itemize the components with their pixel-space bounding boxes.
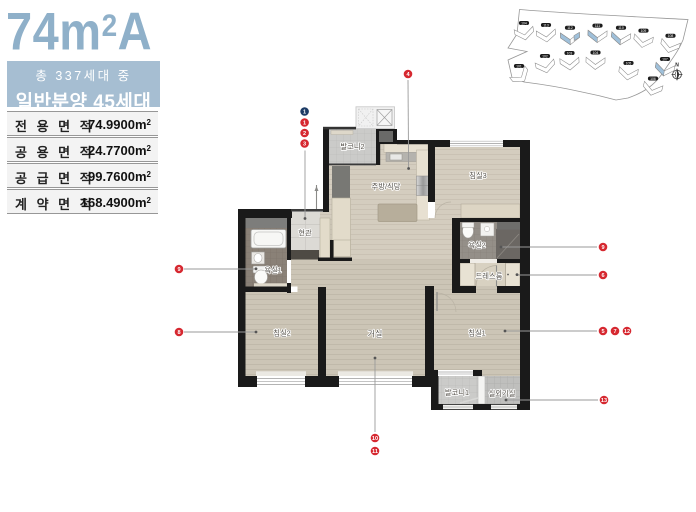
svg-text:10: 10: [372, 436, 378, 442]
svg-text:거실: 거실: [368, 329, 383, 339]
svg-text:5: 5: [601, 329, 604, 335]
svg-text:침실2: 침실2: [273, 329, 290, 338]
svg-text:113: 113: [543, 23, 549, 27]
svg-text:9: 9: [177, 267, 180, 273]
svg-text:104: 104: [521, 21, 527, 25]
svg-text:12: 12: [624, 329, 630, 335]
svg-text:침실3: 침실3: [469, 171, 486, 180]
svg-text:6: 6: [601, 273, 604, 279]
svg-text:11: 11: [372, 449, 378, 455]
svg-text:9: 9: [601, 245, 604, 251]
svg-text:발코니1: 발코니1: [445, 388, 469, 397]
svg-text:7: 7: [613, 329, 616, 335]
svg-text:1: 1: [303, 121, 306, 127]
svg-text:주방/식당: 주방/식당: [372, 182, 401, 191]
svg-text:8: 8: [177, 330, 180, 336]
svg-text:111: 111: [595, 24, 600, 28]
svg-text:실외기실: 실외기실: [489, 389, 516, 398]
svg-text:침실1: 침실1: [468, 329, 485, 338]
svg-text:드레스룸: 드레스룸: [476, 272, 503, 281]
svg-text:102: 102: [542, 54, 548, 58]
svg-text:110: 110: [618, 26, 624, 30]
svg-text:108: 108: [668, 34, 674, 38]
svg-text:112: 112: [567, 26, 573, 30]
svg-text:103: 103: [567, 51, 573, 55]
svg-text:2: 2: [303, 131, 306, 137]
svg-text:1: 1: [303, 110, 306, 116]
svg-text:106: 106: [650, 77, 656, 81]
svg-text:101: 101: [516, 64, 522, 68]
svg-text:105: 105: [626, 61, 632, 65]
svg-text:3: 3: [303, 142, 306, 148]
svg-text:욕실2: 욕실2: [468, 241, 485, 250]
svg-text:발코니2: 발코니2: [340, 142, 364, 151]
svg-text:N: N: [675, 63, 679, 69]
svg-text:13: 13: [601, 398, 607, 404]
svg-text:현관: 현관: [298, 229, 312, 238]
svg-text:107: 107: [662, 57, 668, 61]
svg-text:109: 109: [641, 29, 647, 33]
svg-text:104: 104: [593, 51, 599, 55]
svg-text:욕실1: 욕실1: [264, 266, 281, 275]
